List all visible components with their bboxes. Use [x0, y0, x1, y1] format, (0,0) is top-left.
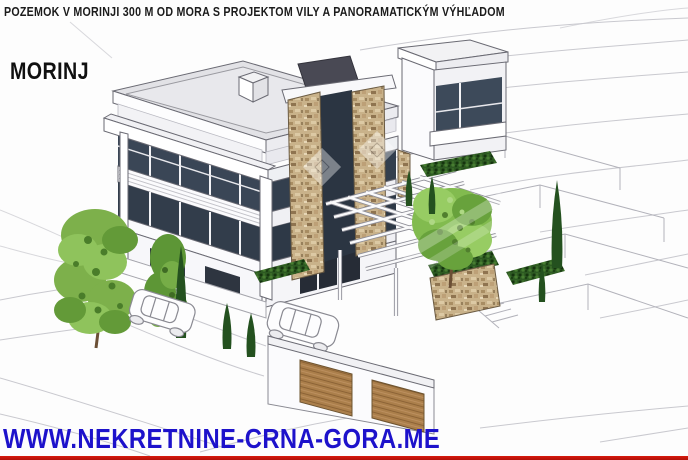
cypress-tree [223, 303, 232, 349]
stone-tower [352, 86, 386, 256]
stone-tower [288, 92, 324, 280]
real-estate-ad-image: POZEMOK V MORINJI 300 M OD MORA S PROJEK… [0, 0, 688, 460]
bottom-red-bar [0, 456, 688, 460]
cypress-tree [247, 313, 256, 357]
website-url: WWW.NEKRETNINE-CRNA-GORA.ME [3, 425, 440, 453]
location-label: MORINJ [10, 60, 89, 84]
upper-villa-block [398, 40, 508, 200]
car-sketch-1 [126, 287, 197, 339]
deciduous-tree-left [54, 209, 138, 348]
villa-illustration [0, 0, 688, 460]
garage [268, 336, 434, 434]
top-caption: POZEMOK V MORINJI 300 M OD MORA S PROJEK… [4, 5, 505, 18]
cypress-tree [552, 180, 563, 268]
